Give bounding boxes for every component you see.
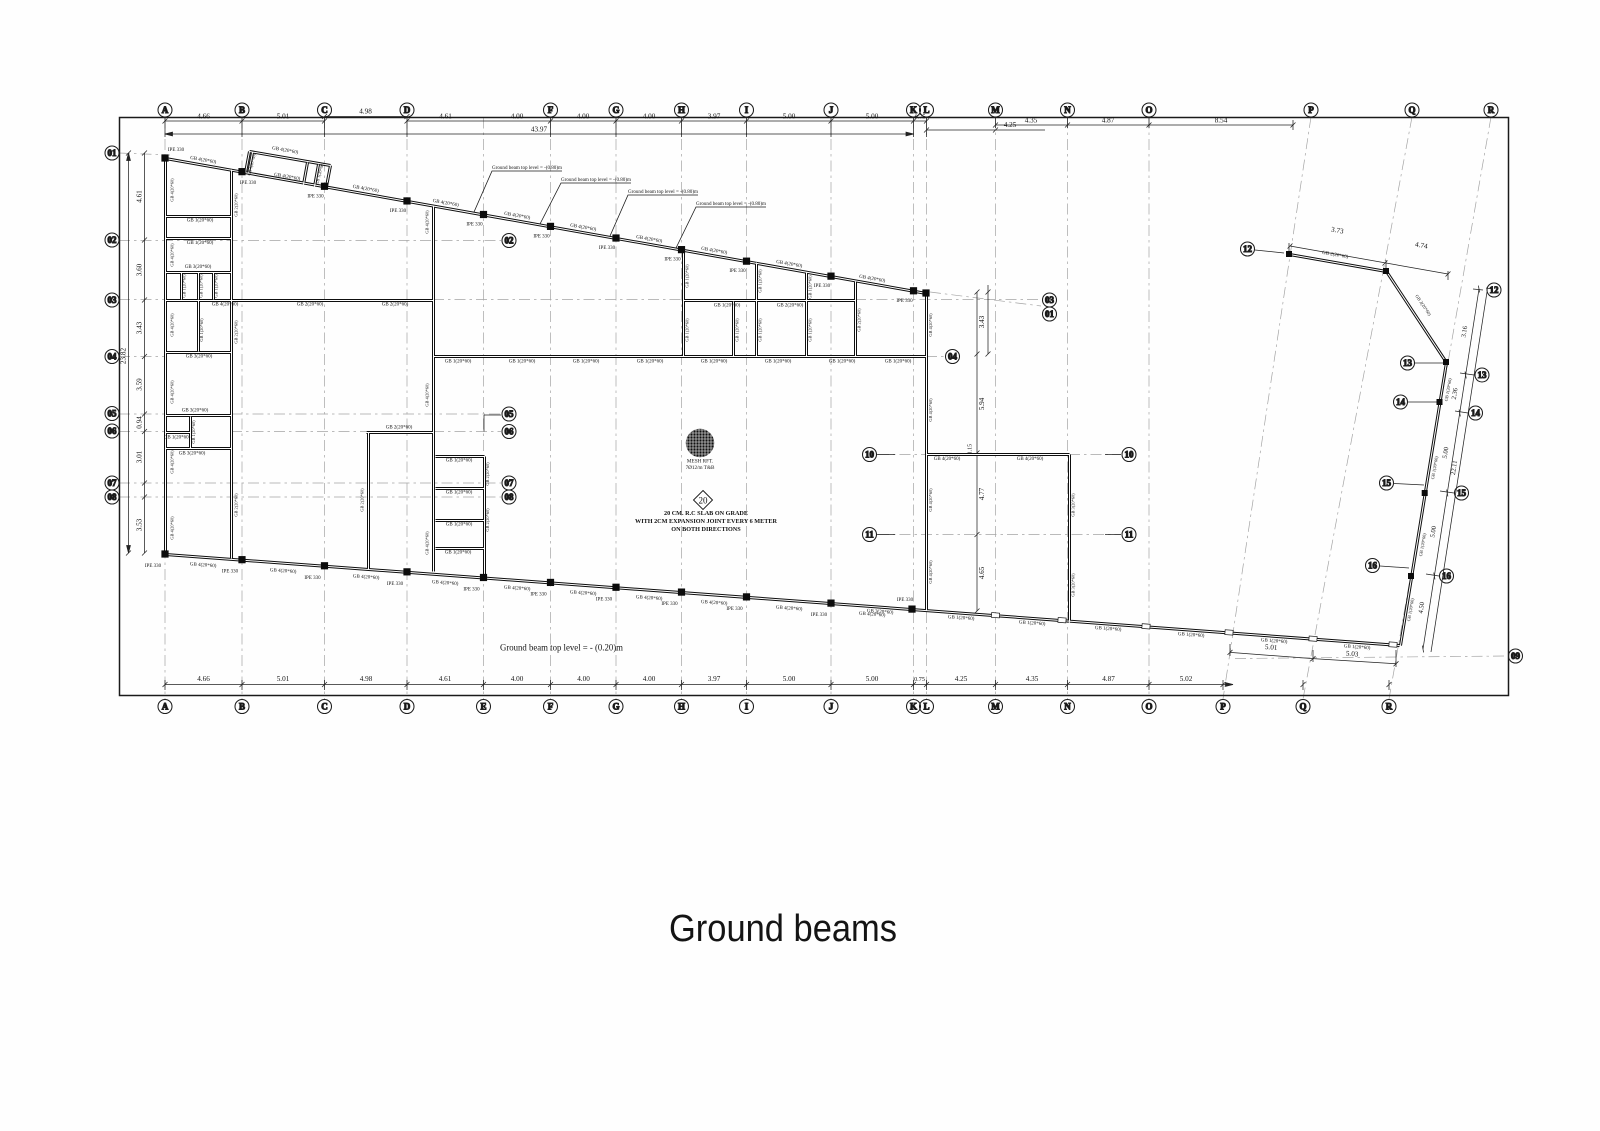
svg-text:06: 06 xyxy=(505,427,515,437)
svg-text:O: O xyxy=(1145,105,1152,115)
svg-text:GB 1(20*60): GB 1(20*60) xyxy=(637,360,664,365)
svg-text:K: K xyxy=(910,702,917,712)
svg-text:GB 1(20*60): GB 1(20*60) xyxy=(685,318,690,342)
svg-text:7Ø12/m T&B: 7Ø12/m T&B xyxy=(686,465,715,471)
svg-text:GB 4(20*60): GB 4(20*60) xyxy=(170,380,175,404)
svg-text:H: H xyxy=(678,702,685,712)
svg-text:A: A xyxy=(162,105,169,115)
svg-text:GB 2(20*60): GB 2(20*60) xyxy=(485,508,490,532)
svg-text:GB 4(20*60): GB 4(20*60) xyxy=(934,457,961,462)
svg-text:20 CM. R.C SLAB ON GRADE: 20 CM. R.C SLAB ON GRADE xyxy=(664,510,748,517)
svg-text:L: L xyxy=(923,702,929,712)
svg-text:GB 1(20*60): GB 1(20*60) xyxy=(765,360,792,365)
svg-text:R: R xyxy=(1488,105,1495,115)
svg-text:GB 1(20*60): GB 1(20*60) xyxy=(735,318,740,342)
svg-text:C: C xyxy=(321,105,328,115)
svg-text:IPE 330: IPE 330 xyxy=(307,194,324,199)
svg-text:02: 02 xyxy=(108,235,118,245)
svg-text:3.97: 3.97 xyxy=(708,675,721,683)
svg-text:4.35: 4.35 xyxy=(1025,117,1038,125)
svg-text:5.00: 5.00 xyxy=(866,675,879,683)
svg-text:GB 3(20*60): GB 3(20*60) xyxy=(179,452,206,457)
svg-text:3.97: 3.97 xyxy=(708,113,721,121)
svg-text:IPE 330: IPE 330 xyxy=(168,148,185,153)
svg-text:M: M xyxy=(991,105,1000,115)
svg-text:GB 1(20*60): GB 1(20*60) xyxy=(199,274,204,298)
svg-text:15: 15 xyxy=(1457,488,1467,498)
svg-text:IPE 330: IPE 330 xyxy=(466,223,483,228)
svg-text:01: 01 xyxy=(108,148,118,158)
svg-text:GB 2(20*60): GB 2(20*60) xyxy=(382,303,409,308)
svg-text:Ground beams: Ground beams xyxy=(669,908,897,950)
svg-text:GB 1(20*60): GB 1(20*60) xyxy=(509,360,536,365)
svg-text:4.00: 4.00 xyxy=(511,675,524,683)
svg-text:GB 3(20*60): GB 3(20*60) xyxy=(186,355,213,360)
svg-text:4.65: 4.65 xyxy=(978,566,986,579)
svg-text:GB 4(20*60): GB 4(20*60) xyxy=(425,210,430,234)
svg-text:F: F xyxy=(548,105,554,115)
svg-text:GB 4(20*60): GB 4(20*60) xyxy=(425,383,430,407)
svg-text:IPE 330: IPE 330 xyxy=(726,607,743,612)
svg-text:GB 4(20*60): GB 4(20*60) xyxy=(928,488,933,512)
svg-text:03: 03 xyxy=(108,295,118,305)
svg-text:N: N xyxy=(1064,105,1071,115)
svg-text:GB 4(20*60): GB 4(20*60) xyxy=(170,313,175,337)
svg-text:G: G xyxy=(612,702,619,712)
svg-text:GB 1(20*60): GB 1(20*60) xyxy=(685,264,690,288)
svg-text:J: J xyxy=(829,702,834,712)
svg-text:11: 11 xyxy=(1125,530,1134,540)
svg-text:IPE 330: IPE 330 xyxy=(533,234,550,239)
svg-text:GB 1(20*60): GB 1(20*60) xyxy=(758,269,763,293)
svg-text:GB 2(20*60): GB 2(20*60) xyxy=(386,426,413,431)
svg-text:G: G xyxy=(612,105,619,115)
svg-text:05: 05 xyxy=(505,409,515,419)
svg-text:GB 1(20*60): GB 1(20*60) xyxy=(714,304,741,309)
svg-text:GB 1(20*60): GB 1(20*60) xyxy=(446,459,473,464)
svg-text:4.61: 4.61 xyxy=(439,675,452,683)
svg-text:4.98: 4.98 xyxy=(359,108,372,116)
svg-text:43.97: 43.97 xyxy=(531,126,548,134)
svg-text:Q: Q xyxy=(1299,702,1306,712)
svg-text:E: E xyxy=(480,702,486,712)
svg-text:5.00: 5.00 xyxy=(783,675,796,683)
svg-text:13: 13 xyxy=(1403,358,1413,368)
svg-text:GB 4(20*60): GB 4(20*60) xyxy=(1017,457,1044,462)
svg-text:IPE 330: IPE 330 xyxy=(463,587,480,592)
svg-text:15: 15 xyxy=(1382,478,1392,488)
svg-text:GB 1(20*60): GB 1(20*60) xyxy=(808,318,813,342)
svg-text:GB 1(20*60): GB 1(20*60) xyxy=(187,219,214,224)
svg-text:GB 3(20*60): GB 3(20*60) xyxy=(185,265,212,270)
svg-text:11: 11 xyxy=(865,530,874,540)
svg-text:GB 1(20*60): GB 1(20*60) xyxy=(214,274,219,298)
svg-text:IPE 330: IPE 330 xyxy=(664,258,681,263)
svg-text:5.00: 5.00 xyxy=(866,113,879,121)
svg-text:GB 1(20*60): GB 1(20*60) xyxy=(808,275,813,299)
svg-text:12: 12 xyxy=(1243,244,1253,254)
svg-text:1.15: 1.15 xyxy=(968,444,974,454)
svg-text:WITH 2CM EXPANSION JOINT EVERY: WITH 2CM EXPANSION JOINT EVERY 6 METER xyxy=(635,518,778,525)
svg-text:0.75: 0.75 xyxy=(915,114,926,121)
svg-text:0.94: 0.94 xyxy=(136,416,144,429)
svg-text:IPE 330: IPE 330 xyxy=(387,582,404,587)
svg-text:IPE 330: IPE 330 xyxy=(897,598,914,603)
svg-text:GB 4(20*60): GB 4(20*60) xyxy=(425,531,430,555)
svg-text:GB 2(20*60): GB 2(20*60) xyxy=(297,303,324,308)
svg-text:IPE 330: IPE 330 xyxy=(814,284,831,289)
svg-text:B: B xyxy=(239,105,245,115)
svg-text:4.00: 4.00 xyxy=(643,675,656,683)
svg-text:07: 07 xyxy=(108,478,118,488)
svg-text:3.43: 3.43 xyxy=(136,321,144,334)
svg-text:0.75: 0.75 xyxy=(914,676,925,683)
svg-text:Ground beam top level = -(0.80: Ground beam top level = -(0.80)m xyxy=(561,176,632,183)
svg-text:4.66: 4.66 xyxy=(197,675,210,683)
svg-text:GB 1(20*60): GB 1(20*60) xyxy=(445,360,472,365)
svg-text:GB 1(20*60): GB 1(20*60) xyxy=(191,420,196,444)
svg-text:03: 03 xyxy=(1045,295,1055,305)
svg-text:GB 1(20*60): GB 1(20*60) xyxy=(885,360,912,365)
svg-text:IPE 330: IPE 330 xyxy=(145,564,162,569)
svg-text:IPE 330: IPE 330 xyxy=(896,299,913,304)
svg-text:GB 1(20*60): GB 1(20*60) xyxy=(829,360,856,365)
svg-text:GB 2(20*60): GB 2(20*60) xyxy=(777,304,804,309)
svg-text:4.00: 4.00 xyxy=(577,675,590,683)
svg-text:4.00: 4.00 xyxy=(643,113,656,121)
svg-text:GB 3(20*60): GB 3(20*60) xyxy=(182,409,209,414)
svg-text:IPE 330: IPE 330 xyxy=(729,269,746,274)
svg-text:5.02: 5.02 xyxy=(1180,675,1193,683)
svg-text:4.25: 4.25 xyxy=(955,675,968,683)
svg-text:14: 14 xyxy=(1396,397,1406,407)
svg-text:J: J xyxy=(829,105,834,115)
svg-text:GB 1(20*60): GB 1(20*60) xyxy=(701,360,728,365)
svg-text:GB 4(20*60): GB 4(20*60) xyxy=(212,303,239,308)
svg-text:06: 06 xyxy=(108,426,118,436)
svg-text:3.60: 3.60 xyxy=(136,263,144,276)
svg-text:Ground beam top level = -(0.80: Ground beam top level = -(0.80)m xyxy=(628,188,699,195)
svg-text:5.03: 5.03 xyxy=(1346,650,1360,659)
svg-text:GB 4(20*60): GB 4(20*60) xyxy=(928,313,933,337)
svg-text:5.00: 5.00 xyxy=(783,113,796,121)
svg-text:08: 08 xyxy=(108,492,118,502)
svg-text:4.61: 4.61 xyxy=(136,190,144,203)
svg-text:IPE 330: IPE 330 xyxy=(596,597,613,602)
svg-text:04: 04 xyxy=(108,352,118,362)
svg-text:3.01: 3.01 xyxy=(136,450,144,463)
svg-text:GB 2(20*60): GB 2(20*60) xyxy=(234,493,239,517)
svg-text:07: 07 xyxy=(505,478,515,488)
svg-text:H: H xyxy=(678,105,685,115)
svg-text:GB 3(20*60): GB 3(20*60) xyxy=(1071,493,1076,517)
svg-text:Ground beam top level = - (0.2: Ground beam top level = - (0.20)m xyxy=(500,643,623,653)
svg-text:23.82: 23.82 xyxy=(120,348,128,365)
svg-text:20: 20 xyxy=(699,496,709,506)
svg-text:08: 08 xyxy=(505,492,515,502)
svg-text:10: 10 xyxy=(865,450,875,460)
svg-text:14: 14 xyxy=(1471,408,1481,418)
svg-text:4.25: 4.25 xyxy=(1004,121,1017,129)
svg-text:GB 3(20*60): GB 3(20*60) xyxy=(1071,573,1076,597)
svg-text:D: D xyxy=(404,105,411,115)
svg-text:GB 1(20*60): GB 1(20*60) xyxy=(573,360,600,365)
svg-text:A: A xyxy=(162,702,169,712)
svg-text:I: I xyxy=(745,702,749,712)
svg-text:N: N xyxy=(1064,702,1071,712)
svg-text:GB 1(20*60): GB 1(20*60) xyxy=(445,551,472,556)
svg-text:IPE 330: IPE 330 xyxy=(530,592,547,597)
svg-text:GB 1(20*60): GB 1(20*60) xyxy=(446,491,473,496)
svg-text:IPE 330: IPE 330 xyxy=(240,181,257,186)
svg-text:GB 1(20*60): GB 1(20*60) xyxy=(199,318,204,342)
svg-text:10: 10 xyxy=(1125,450,1135,460)
svg-text:12: 12 xyxy=(1490,285,1500,295)
svg-text:IPE 330: IPE 330 xyxy=(222,570,239,575)
svg-text:4.87: 4.87 xyxy=(1102,675,1115,683)
svg-text:MESH RFT.: MESH RFT. xyxy=(687,459,713,465)
svg-text:GB 1(20*60): GB 1(20*60) xyxy=(446,523,473,528)
svg-text:D: D xyxy=(404,702,411,712)
svg-text:3.59: 3.59 xyxy=(136,378,144,391)
svg-text:4.61: 4.61 xyxy=(439,113,452,121)
svg-text:04: 04 xyxy=(948,352,958,362)
svg-text:GB 1(20*60): GB 1(20*60) xyxy=(182,274,187,298)
svg-text:GB 1(20*60): GB 1(20*60) xyxy=(164,436,191,441)
svg-text:4.87: 4.87 xyxy=(1102,117,1115,125)
svg-text:M: M xyxy=(991,702,1000,712)
svg-text:GB 1(20*60): GB 1(20*60) xyxy=(187,241,214,246)
svg-text:GB 2(20*60): GB 2(20*60) xyxy=(485,462,490,486)
svg-text:3.43: 3.43 xyxy=(978,315,986,328)
svg-text:16: 16 xyxy=(1368,561,1378,571)
svg-text:O: O xyxy=(1145,702,1152,712)
svg-text:5.01: 5.01 xyxy=(277,675,290,683)
svg-text:P: P xyxy=(1308,105,1314,115)
svg-text:Q: Q xyxy=(1408,105,1415,115)
svg-text:IPE 330: IPE 330 xyxy=(811,613,828,618)
svg-text:GB 4(20*60): GB 4(20*60) xyxy=(170,243,175,267)
svg-text:09: 09 xyxy=(1511,651,1521,661)
svg-text:P: P xyxy=(1220,702,1226,712)
svg-text:4.77: 4.77 xyxy=(978,487,986,500)
svg-text:B: B xyxy=(239,702,245,712)
svg-text:3.53: 3.53 xyxy=(136,518,144,531)
svg-text:16: 16 xyxy=(1442,571,1452,581)
svg-text:GB 4(20*60): GB 4(20*60) xyxy=(170,450,175,474)
svg-text:C: C xyxy=(321,702,328,712)
svg-text:GB 4(20*60): GB 4(20*60) xyxy=(928,560,933,584)
svg-text:R: R xyxy=(1386,702,1393,712)
svg-text:4.66: 4.66 xyxy=(197,113,210,121)
svg-text:GB 2(20*60): GB 2(20*60) xyxy=(360,488,365,512)
svg-text:02: 02 xyxy=(505,236,515,246)
svg-text:4.35: 4.35 xyxy=(1026,675,1039,683)
svg-text:5.94: 5.94 xyxy=(978,397,986,410)
svg-text:I: I xyxy=(745,105,749,115)
svg-text:13: 13 xyxy=(1478,370,1488,380)
svg-text:IPE 330: IPE 330 xyxy=(661,602,678,607)
svg-text:Ground beam top level = -(0.80: Ground beam top level = -(0.80)m xyxy=(696,200,767,207)
svg-text:4.98: 4.98 xyxy=(360,675,373,683)
svg-text:IPE 330: IPE 330 xyxy=(599,246,616,251)
svg-text:ON BOTH DIRECTIONS: ON BOTH DIRECTIONS xyxy=(671,526,741,533)
svg-text:4.00: 4.00 xyxy=(577,113,590,121)
svg-text:GB 1(20*60): GB 1(20*60) xyxy=(758,318,763,342)
svg-text:GB 4(20*60): GB 4(20*60) xyxy=(928,398,933,422)
svg-text:GB 4(20*60): GB 4(20*60) xyxy=(170,516,175,540)
svg-text:GB 2(20*60): GB 2(20*60) xyxy=(234,193,239,217)
svg-text:01: 01 xyxy=(1045,309,1055,319)
svg-text:GB 4(20*60): GB 4(20*60) xyxy=(170,178,175,202)
svg-text:GB 2(20*60): GB 2(20*60) xyxy=(857,308,862,332)
svg-text:8.54: 8.54 xyxy=(1215,117,1228,125)
svg-text:05: 05 xyxy=(108,409,118,419)
svg-text:4.00: 4.00 xyxy=(511,113,524,121)
svg-text:Ground beam top level = -(0.80: Ground beam top level = -(0.80)m xyxy=(492,164,563,171)
svg-text:5.01: 5.01 xyxy=(277,113,290,121)
svg-text:F: F xyxy=(548,702,554,712)
svg-text:IPE 330: IPE 330 xyxy=(390,209,407,214)
svg-text:GB 2(20*60): GB 2(20*60) xyxy=(234,320,239,344)
svg-text:IPE 330: IPE 330 xyxy=(304,576,321,581)
